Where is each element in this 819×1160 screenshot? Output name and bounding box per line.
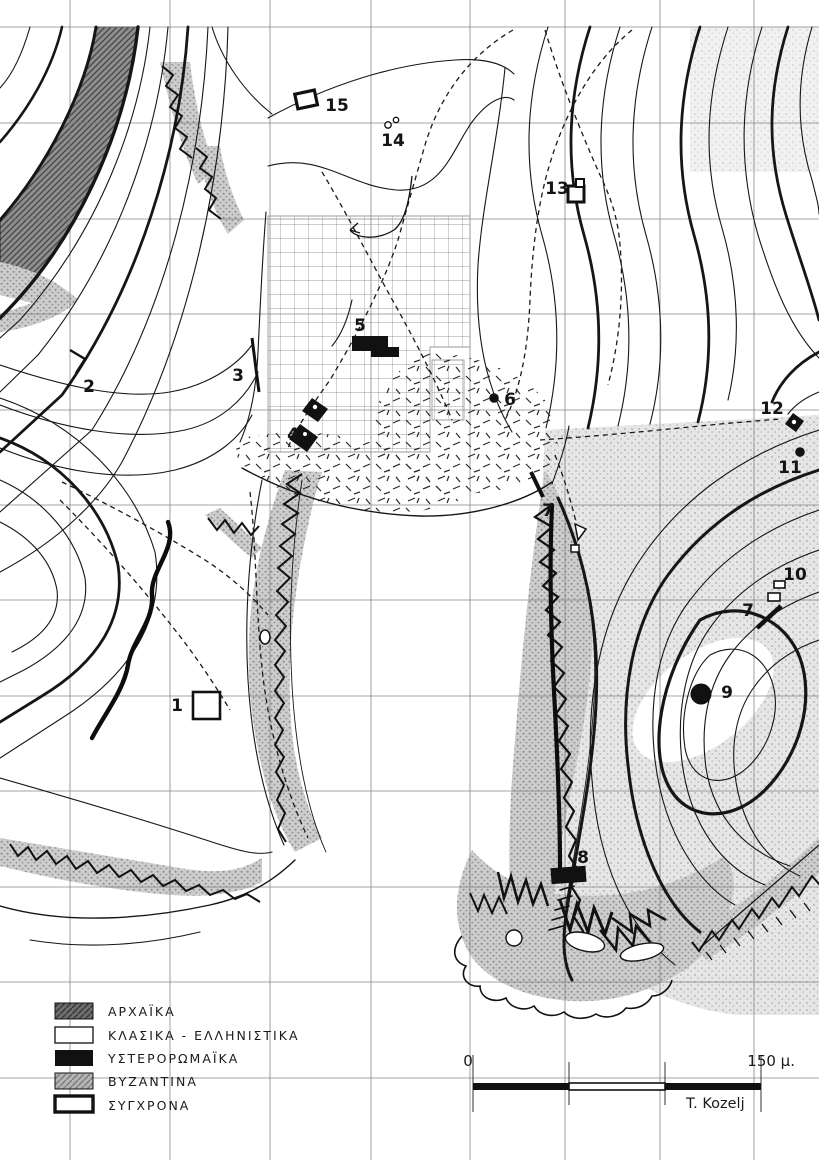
chevron-icon (70, 350, 85, 373)
map-marker-2: 2 (70, 350, 95, 397)
marker-label-4: 4 (287, 425, 299, 445)
open-square-icon (295, 90, 318, 109)
legend-swatch-white-thick (55, 1096, 93, 1112)
black-rect-icon (550, 866, 586, 884)
marker-label-6: 6 (504, 390, 516, 410)
marker-label-3: 3 (232, 366, 244, 386)
legend-swatch-dark-hatched (55, 1003, 93, 1019)
legend-item-late-roman: ΥΣΤΕΡΟΡΩΜΑΪΚΑ (55, 1050, 239, 1066)
marker-label-11: 11 (778, 458, 802, 478)
marker-label-12: 12 (760, 399, 784, 419)
dot-icon (795, 447, 805, 457)
marker-label-7b: 7 (742, 601, 754, 621)
small-circle-icon (385, 122, 391, 128)
small-oval (260, 630, 270, 644)
open-square-icon (193, 692, 220, 719)
open-rect-icon (768, 593, 780, 601)
marker-label-8: 8 (577, 848, 589, 868)
legend-item-byzantine: ΒΥΖΑΝΤΙΝΑ (55, 1073, 198, 1089)
marker-label-2: 2 (83, 377, 95, 397)
terrain-shading (0, 27, 819, 1015)
legend-item-archaic: ΑΡΧΑΪΚΑ (55, 1003, 176, 1019)
legend-swatch-gray-hatched (55, 1073, 93, 1089)
legend-label: ΣΥΓΧΡΟΝΑ (108, 1098, 190, 1113)
map-marker-14: 14 (381, 117, 405, 151)
legend-swatch-white-thin (55, 1027, 93, 1043)
diamond-center-dot (792, 420, 796, 424)
legend-label: ΑΡΧΑΪΚΑ (108, 1004, 176, 1019)
legend-label: ΥΣΤΕΡΟΡΩΜΑΪΚΑ (107, 1051, 239, 1066)
tiny-square (571, 545, 579, 552)
scale-bar: 0 150 μ. T. Kozelj (463, 1052, 795, 1112)
legend-label: ΚΛΑΣΙΚΑ - ΕΛΛΗΝΙΣΤΙΚΑ (108, 1028, 300, 1043)
large-dot-icon (691, 684, 712, 705)
site-map: 1 2 3 4 5 6 7 7 (0, 0, 819, 1160)
dot-icon (489, 393, 499, 403)
legend-item-classical-hellenistic: ΚΛΑΣΙΚΑ - ΕΛΛΗΝΙΣΤΙΚΑ (55, 1027, 300, 1043)
legend-swatch-black (55, 1050, 93, 1066)
map-marker-1: 1 (171, 692, 220, 719)
marker-label-14: 14 (381, 131, 405, 151)
scale-end-label: 150 μ. (747, 1052, 795, 1070)
marker-label-5: 5 (354, 316, 366, 336)
marker-label-15: 15 (325, 96, 349, 116)
marker-label-10: 10 (783, 565, 807, 585)
legend-item-modern: ΣΥΓΧΡΟΝΑ (55, 1096, 190, 1113)
small-circle-icon (393, 117, 398, 122)
marker-label-7a: 7 (542, 501, 554, 521)
marker-label-1: 1 (171, 696, 183, 716)
map-marker-13: 13 (545, 179, 584, 202)
wall-west (92, 522, 170, 738)
marker-label-9: 9 (721, 683, 733, 703)
map-legend: ΑΡΧΑΪΚΑ ΚΛΑΣΙΚΑ - ΕΛΛΗΝΙΣΤΙΚΑ ΥΣΤΕΡΟΡΩΜΑ… (55, 1003, 300, 1113)
map-page: 1 2 3 4 5 6 7 7 (0, 0, 819, 1160)
diamond-center-dot (313, 405, 317, 409)
scale-segment-white (569, 1083, 665, 1090)
legend-label: ΒΥΖΑΝΤΙΝΑ (108, 1074, 198, 1089)
scale-segment-black (665, 1083, 761, 1090)
scale-segment-black (473, 1083, 569, 1090)
open-square-icon (568, 186, 584, 202)
open-square-icon (576, 179, 584, 187)
diamond-center-dot (303, 432, 307, 436)
map-marker-15: 15 (295, 90, 349, 116)
scale-start-label: 0 (463, 1052, 473, 1070)
map-credit: T. Kozelj (685, 1096, 745, 1112)
marker-label-13: 13 (545, 179, 569, 199)
